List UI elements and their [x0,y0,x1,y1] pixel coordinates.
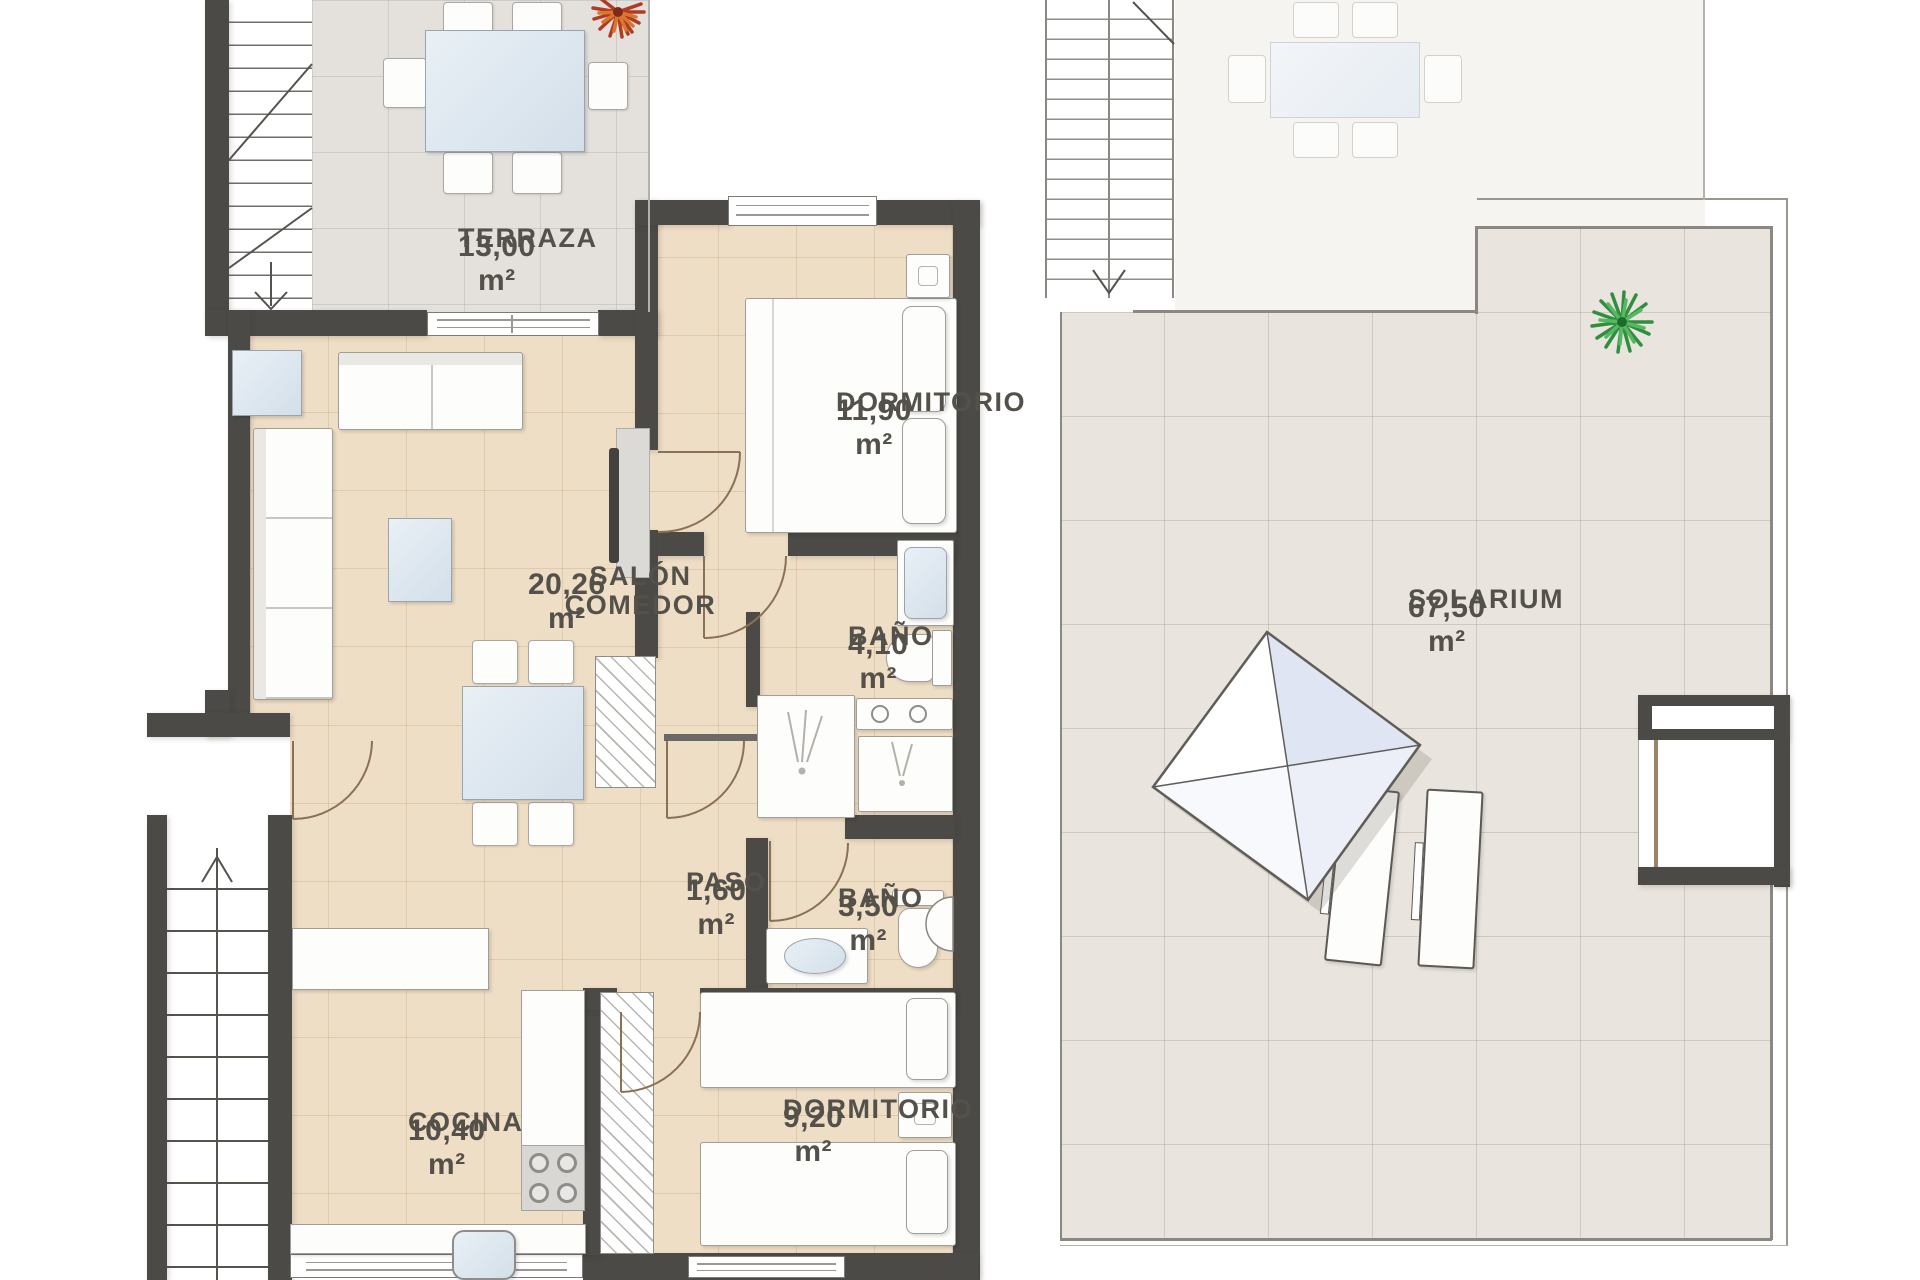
room-area: 20,26 m² [528,568,606,636]
floor-plan-canvas: TERRAZA 13,00 m² SALÓN COMEDOR 20,26 m² … [0,0,1920,1280]
room-area: 67,50 m² [1408,591,1486,659]
plant-icon [593,0,644,37]
room-area: 1,60 m² [686,874,746,942]
room-area: 10,40 m² [408,1114,486,1182]
arch-niche [926,897,953,951]
room-area: 4,10 m² [848,628,908,696]
shower-spray-icon [788,710,912,786]
door-arcs [293,452,848,1092]
vector-overlay [0,0,1920,1280]
plant-icon [1592,292,1652,352]
room-area: 11,90 m² [836,394,912,462]
room-area: 13,00 m² [458,230,536,298]
shade-pyramid [1153,632,1432,912]
room-area: 9,20 m² [783,1101,843,1169]
stair-arrows [202,2,1174,882]
room-area: 3,50 m² [838,890,898,958]
